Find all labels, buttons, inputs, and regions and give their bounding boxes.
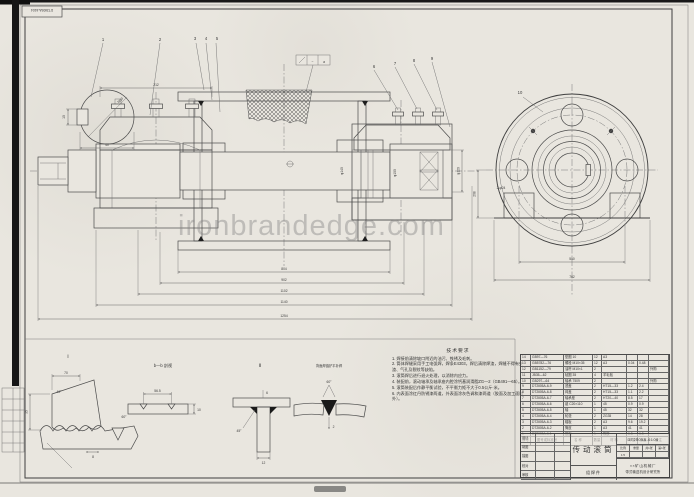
table-cell: 4 [593, 373, 602, 378]
callout-3: 3 [194, 36, 197, 41]
bolt [112, 99, 199, 117]
table-cell: 轴 [564, 408, 593, 413]
table-cell [649, 420, 669, 425]
table-cell: DT2Ⅱ05A-6-3 [531, 420, 564, 425]
table-cell [602, 367, 627, 372]
table-cell: 2 [593, 414, 602, 419]
table-cell: 辐板 [564, 420, 593, 425]
table-cell: 1 [593, 402, 602, 407]
technical-notes: 技术要求 1. 焊接前清除坡口附近的油污、铁锈及毛刺。 2. 筒体焊缝采用手工电… [392, 347, 524, 402]
table-cell: 透盖 [564, 384, 593, 389]
table-cell: GB297—64 [531, 379, 564, 384]
table-cell: 1 [593, 426, 602, 431]
detail2-angle: 45° [237, 429, 243, 433]
end-view: 2-φ24 550 762 208 10 [473, 84, 659, 296]
table-cell: 32 [638, 408, 649, 413]
table-cell: 28 [638, 414, 649, 419]
table-cell: 45 [602, 402, 627, 407]
note-item: 4. 装配前，滚动轴承及轴承座内腔涂钙基润滑脂ZG—2（GB491—65）。 [392, 379, 524, 384]
table-cell: GB97—76 [531, 355, 564, 360]
table-cell: 6 [521, 402, 531, 407]
table-cell: 5 [521, 408, 531, 413]
drawing-title: 传动滚筒 [571, 434, 616, 465]
table-cell [649, 426, 669, 431]
table-cell: 7 [521, 396, 531, 401]
scan-binding-band [12, 0, 19, 386]
stamp-code: DT2Ⅱ05A-6104 [31, 8, 53, 12]
org-line2: 带式输送机设计研究所 [626, 469, 661, 474]
table-cell: 羊毛毡 [602, 373, 627, 378]
table-cell [536, 462, 555, 470]
table-cell: A3 [602, 361, 627, 366]
revision-grid [2, 388, 24, 452]
watermark: ironbrandedge.com [178, 210, 498, 243]
callout-2: 2 [159, 37, 162, 42]
table-row: 制图 [521, 443, 570, 452]
table-cell [627, 379, 638, 384]
detail-views: Ⅰ 70 40° 60° 35 8 b—b 剖视 56 [25, 354, 367, 465]
table-cell: 1.2 [627, 384, 638, 389]
parts-list-rows: 14GB97—76垫圈 1012A313GB5782—76螺栓 M10×3512… [521, 355, 669, 437]
drawing-number-stamp: DT2Ⅱ05A-6104 [22, 6, 62, 17]
table-cell: 2.2 [638, 390, 649, 395]
table-cell [649, 408, 669, 413]
section-bb-label: b—b 剖视 [154, 362, 173, 369]
detail1-angle2: 60° [122, 415, 128, 419]
table-cell [649, 402, 669, 407]
table-cell [649, 414, 669, 419]
drawing-type: 组焊件 [571, 465, 616, 480]
surface-symbol-mid: ~ [312, 60, 314, 64]
scale-value: 1:5 [617, 452, 630, 459]
butt-weld-angle: 60° [327, 380, 333, 384]
surface-symbol-right: a [323, 60, 325, 64]
table-cell [627, 373, 638, 378]
bearing-span-dim: 212 [153, 83, 159, 87]
table-cell: ZG35 [602, 414, 627, 419]
table-cell [649, 396, 669, 401]
note-item: 3. 滚筒焊后进行退火处理，以消除内应力。 [392, 373, 524, 378]
table-cell: GB5782—76 [531, 361, 564, 366]
table-cell: 0.48 [638, 361, 649, 366]
table-cell: 14 [627, 414, 638, 419]
note-item: 5. 滚筒装配后作静平衡试验，不平衡力矩不大于0.5公斤·米。 [392, 385, 524, 390]
table-cell: 轮毂 [564, 414, 593, 419]
base-width-dim: 762 [569, 275, 575, 279]
table-cell: 0.04 [627, 361, 638, 366]
organization: ××矿山机械厂 带式输送机设计研究所 [617, 459, 669, 480]
table-cell: DT2Ⅱ05A-6-7 [531, 396, 564, 401]
dim-1254: 1254 [280, 314, 288, 318]
table-cell: DT2Ⅱ05A-6-5 [531, 408, 564, 413]
table-cell: 9 [521, 384, 531, 389]
table-cell [638, 373, 649, 378]
table-cell: JB35—62 [531, 373, 564, 378]
table-cell: 41 [627, 426, 638, 431]
table-cell: 校对 [521, 462, 536, 470]
bolt [393, 108, 444, 125]
callout-5: 5 [216, 36, 219, 41]
detail1-top-dim: 70 [64, 371, 68, 375]
callout-6: 6 [373, 64, 376, 69]
scale-grid: 比例 重量 共1张 第1张 1:5 [617, 445, 669, 459]
detail1-label: Ⅰ [67, 354, 68, 360]
shaft-end-detail: M10 40 10 [62, 90, 134, 150]
surface-symbol: ~ a [296, 55, 330, 92]
table-cell [627, 367, 638, 372]
table-cell [649, 373, 669, 378]
table-cell: 2 [521, 426, 531, 431]
callout-7: 7 [394, 61, 397, 66]
table-cell: A3 [602, 426, 627, 431]
title-block: 设计制图描图校对审核 传动滚筒 组焊件 DT2Ⅱ05A-6104 比例 重量 共… [520, 433, 670, 478]
detail2-tweld: 45° 6 12 [233, 390, 290, 465]
table-cell: 2 [593, 379, 602, 384]
table-cell [536, 452, 555, 460]
lagging-pattern [246, 90, 312, 124]
table-cell: 19.2 [638, 420, 649, 425]
table-cell: 10 [521, 379, 531, 384]
table-cell: 轴承座 [564, 396, 593, 401]
butt-weld-label: 背面焊缝铲平补焊 [316, 363, 343, 368]
dim-902: 902 [281, 278, 287, 282]
thread-label: M10 [117, 96, 124, 103]
table-cell [649, 390, 669, 395]
table-cell: 2 [593, 390, 602, 395]
detail1-lagging: 70 40° 60° 35 8 [25, 371, 139, 459]
table-cell: HT20—40 [602, 396, 627, 401]
table-row: 设计 [521, 434, 570, 443]
feet-holes-dim: 2-φ24 [497, 186, 506, 190]
table-cell: 9.6 [627, 420, 638, 425]
detail-width-dim: 40 [105, 143, 109, 147]
table-cell: 12 [593, 355, 602, 360]
table-cell: 32 [627, 408, 638, 413]
table-cell: 外购 [649, 367, 669, 372]
weight-value [630, 452, 643, 459]
table-cell: DT2Ⅱ05A-6-2 [531, 426, 564, 431]
butt-weld-gap: 2 [333, 425, 335, 429]
callout-10: 10 [518, 90, 523, 95]
table-cell [638, 367, 649, 372]
table-cell [638, 355, 649, 360]
table-cell: DT2Ⅱ05A-6-6 [531, 402, 564, 407]
table-cell: 45 [602, 408, 627, 413]
table-cell [536, 471, 555, 479]
table-cell: 垫圈 10 [564, 355, 593, 360]
title-block-center: 传动滚筒 组焊件 [571, 434, 617, 480]
table-cell: 0.9 [638, 402, 649, 407]
table-cell: 11 [521, 373, 531, 378]
table-cell [649, 384, 669, 389]
callout-1: 1 [102, 37, 105, 42]
table-cell: DT2Ⅱ05A-6-9 [531, 384, 564, 389]
main-section-view: ~ a 1 2 3 4 5 6 7 8 9 [30, 36, 480, 321]
table-cell: 17 [638, 396, 649, 401]
table-cell: 外购 [649, 379, 669, 384]
table-cell: 键 C20×110 [564, 402, 593, 407]
table-cell: 油杯 M10×1 [564, 367, 593, 372]
table-row: 描图 [521, 452, 570, 461]
table-cell: 4 [521, 414, 531, 419]
title-block-right: DT2Ⅱ05A-6104 比例 重量 共1张 第1张 1:5 ××矿山机械厂 带… [617, 434, 669, 480]
detail1-angle1: 40° [57, 390, 63, 394]
blank-cell [656, 452, 669, 459]
table-cell: 3 [521, 420, 531, 425]
height-dim: 208 [473, 191, 477, 197]
note-item: 6. 内表面涂红丹防锈漆两道，外表面涂灰色调和漆两道（胶面及加工面除外）。 [392, 391, 524, 402]
table-cell [536, 434, 555, 442]
table-cell: A3 [602, 420, 627, 425]
drawing-number: DT2Ⅱ05A-6104 [617, 434, 669, 445]
table-cell: 轴承 7509 [564, 379, 593, 384]
table-cell: 2.4 [638, 384, 649, 389]
table-cell: 制图 [521, 443, 536, 451]
table-row: 审核 [521, 471, 570, 480]
table-cell: 41 [638, 426, 649, 431]
table-row: 校对 [521, 462, 570, 471]
table-cell [649, 355, 669, 360]
detail2-bottom-dim: 12 [262, 461, 266, 465]
table-cell: 8 [521, 390, 531, 395]
table-cell: GB1152—79 [531, 367, 564, 372]
keyway [586, 165, 591, 176]
table-cell: 螺栓 M10×35 [564, 361, 593, 366]
table-cell: 14 [521, 355, 531, 360]
detail2-label: Ⅱ [259, 363, 261, 369]
feet-span-dim: 550 [569, 257, 575, 261]
table-cell [627, 355, 638, 360]
scan-smudge [314, 486, 346, 492]
table-cell [602, 379, 627, 384]
table-cell: 审核 [521, 471, 536, 479]
detail-height-dim: 10 [62, 115, 66, 119]
notes-title: 技术要求 [392, 347, 524, 354]
signature-grid: 设计制图描图校对审核 [521, 434, 571, 480]
table-cell: 1.1 [627, 390, 638, 395]
table-cell: 描图 [521, 452, 536, 460]
table-cell: 12 [521, 367, 531, 372]
dim-1140: 1140 [280, 300, 287, 304]
table-cell: 1 [593, 408, 602, 413]
note-item: 2. 筒体焊缝采用手工电弧焊，焊条E4303，焊后清除焊渣，焊缝不得有夹渣、气孔… [392, 361, 524, 372]
drawing-sheet: DT2Ⅱ05A-6104 [0, 0, 694, 497]
table-cell: 筒皮 [564, 426, 593, 431]
table-cell: 闷盖 [564, 390, 593, 395]
table-cell [536, 443, 555, 451]
callout-4: 4 [205, 36, 208, 41]
butt-weld: 60° 2 [294, 380, 366, 429]
table-cell: 12 [593, 361, 602, 366]
section-bb: 56.5 10 [128, 389, 201, 414]
table-cell: A3 [602, 355, 627, 360]
section-bb-dim: 56.5 [154, 389, 161, 393]
table-cell: HT15—33 [602, 384, 627, 389]
table-cell [649, 361, 669, 366]
table-cell: 2 [593, 384, 602, 389]
table-cell: 0.9 [627, 402, 638, 407]
bore-dia-dim: φ100 [393, 169, 397, 177]
table-cell [638, 379, 649, 384]
detail1-pitch-dim: 8 [92, 455, 94, 459]
table-cell: 8.5 [627, 396, 638, 401]
shaft-dia-dim: φ120 [457, 167, 461, 175]
callout-9: 9 [431, 56, 434, 61]
table-cell: DT2Ⅱ05A-6-4 [531, 414, 564, 419]
table-cell: 设计 [521, 434, 536, 442]
table-cell: 毡圈 35 [564, 373, 593, 378]
section-bb-right-dim: 10 [197, 408, 201, 412]
table-cell: DT2Ⅱ05A-6-8 [531, 390, 564, 395]
dim-804: 804 [281, 267, 287, 271]
table-cell: 2 [593, 367, 602, 372]
table-cell: 2 [593, 420, 602, 425]
callout-8: 8 [413, 58, 416, 63]
table-cell: 2 [593, 396, 602, 401]
detail1-depth-dim: 35 [25, 410, 29, 414]
detail2-top-dim: 6 [266, 391, 268, 395]
hub-dia-dim: φ140 [340, 167, 344, 175]
table-cell: 13 [521, 361, 531, 366]
table-cell: HT15—33 [602, 390, 627, 395]
dim-1102: 1102 [280, 289, 287, 293]
blank-cell [643, 452, 656, 459]
